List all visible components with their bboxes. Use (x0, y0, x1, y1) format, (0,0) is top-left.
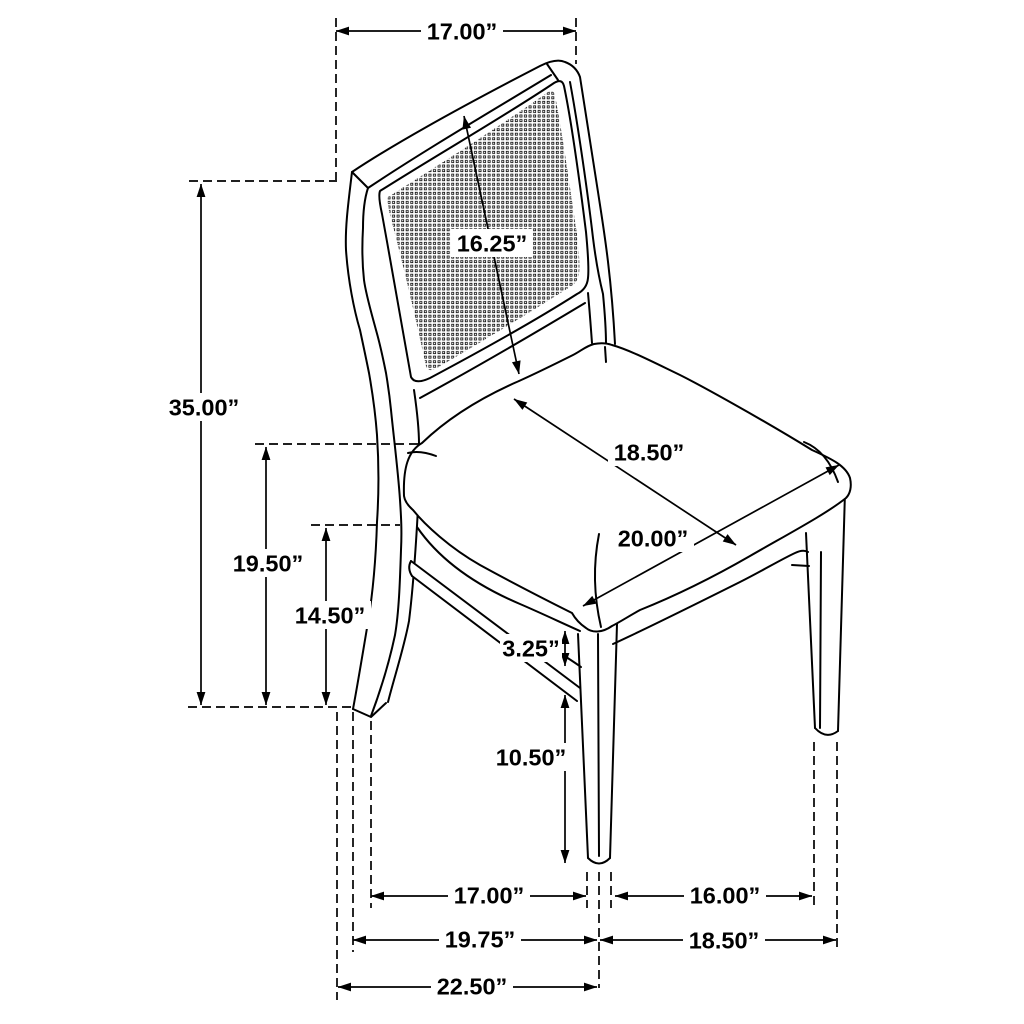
svg-text:16.25”: 16.25” (457, 231, 528, 257)
svg-text:19.50”: 19.50” (233, 551, 304, 577)
svg-text:10.50”: 10.50” (496, 745, 567, 771)
svg-text:20.00”: 20.00” (618, 526, 689, 552)
svg-text:22.50”: 22.50” (437, 974, 508, 1000)
svg-text:14.50”: 14.50” (295, 603, 366, 629)
svg-text:16.00”: 16.00” (690, 883, 761, 909)
svg-text:18.50”: 18.50” (614, 440, 685, 466)
svg-text:18.50”: 18.50” (689, 928, 760, 954)
svg-text:3.25”: 3.25” (502, 636, 560, 662)
svg-text:17.00”: 17.00” (454, 883, 525, 909)
svg-text:17.00”: 17.00” (427, 19, 498, 45)
svg-text:19.75”: 19.75” (445, 927, 516, 953)
svg-text:35.00”: 35.00” (169, 395, 240, 421)
